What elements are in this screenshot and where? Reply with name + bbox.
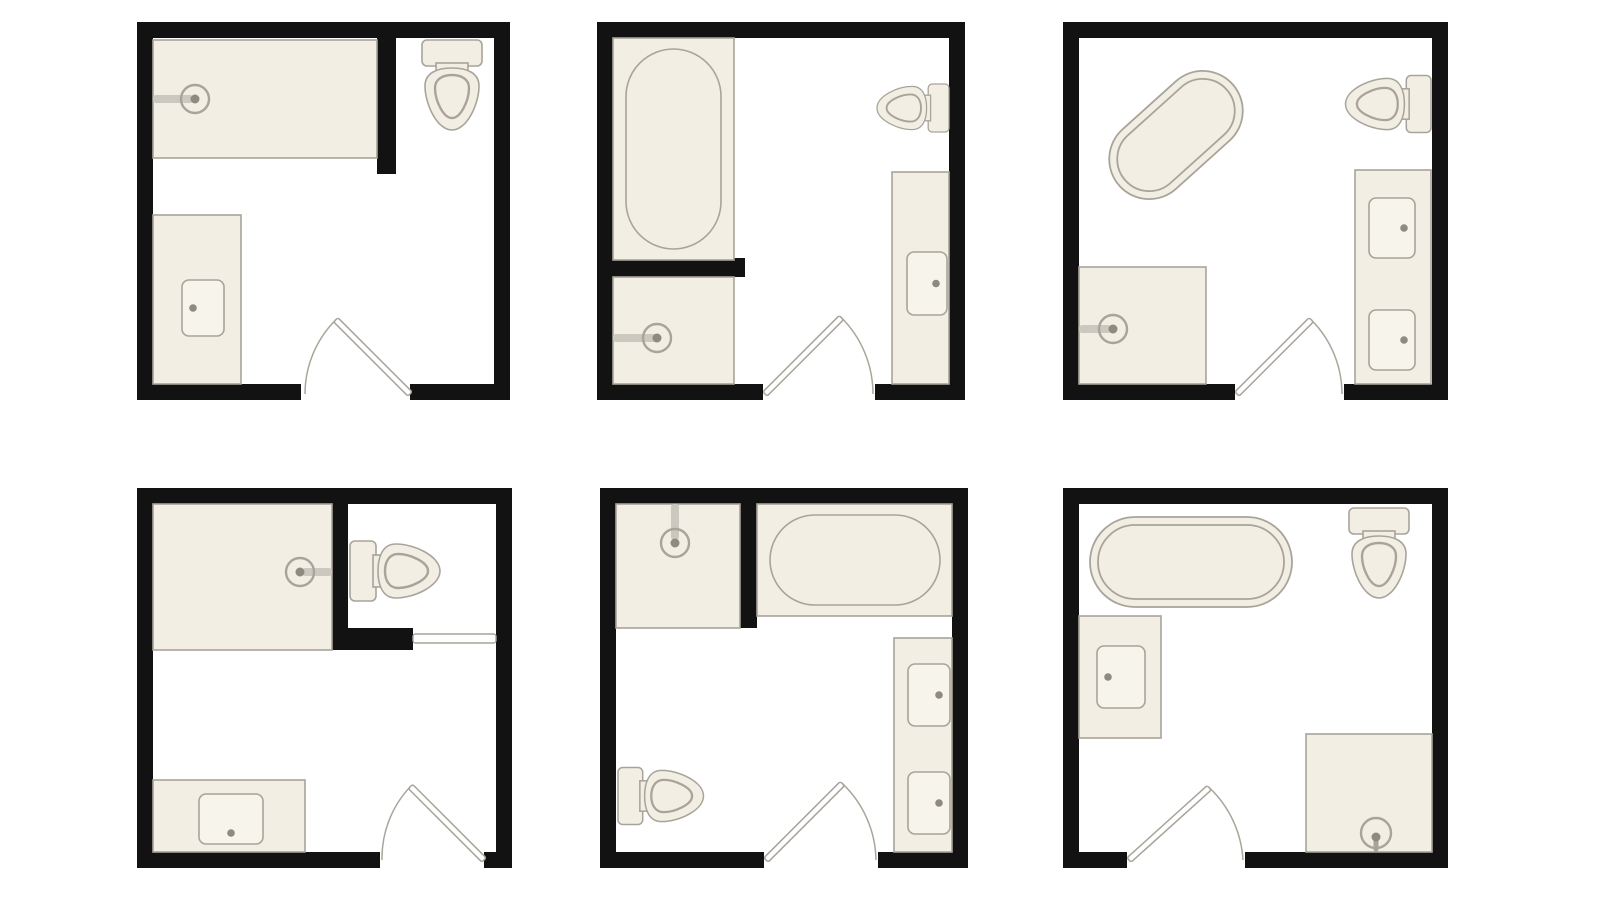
toilet-tank bbox=[928, 84, 949, 132]
floor-plans-canvas bbox=[0, 0, 1600, 900]
partition-wall bbox=[377, 22, 396, 174]
sink-drain bbox=[189, 304, 197, 312]
partition-wall bbox=[332, 488, 348, 650]
shower-arm bbox=[302, 568, 332, 576]
tub-outer bbox=[1090, 517, 1292, 607]
sink bbox=[907, 252, 947, 315]
bathtub-alcove bbox=[613, 38, 734, 260]
shower-head-nozzle bbox=[296, 568, 305, 577]
bathroom-plan-2 bbox=[597, 22, 965, 400]
sink bbox=[199, 794, 263, 844]
sink-basin bbox=[908, 664, 950, 726]
shower-head-nozzle bbox=[1109, 325, 1118, 334]
door-opening bbox=[380, 852, 484, 869]
partition-wall bbox=[740, 488, 757, 628]
sink-drain bbox=[1400, 224, 1408, 232]
sink bbox=[1369, 198, 1415, 258]
shower-arm bbox=[1079, 325, 1111, 333]
door-opening bbox=[764, 852, 878, 869]
sink bbox=[908, 664, 950, 726]
sliding-door bbox=[413, 634, 496, 643]
sink bbox=[908, 772, 950, 834]
shower-head-nozzle bbox=[653, 334, 662, 343]
sink-drain bbox=[227, 829, 235, 837]
tub-deck bbox=[613, 38, 734, 260]
tub-deck bbox=[757, 504, 952, 616]
door-opening bbox=[301, 384, 410, 401]
toilet-tank bbox=[1406, 76, 1431, 133]
toilet-tank bbox=[618, 768, 643, 825]
partition-wall bbox=[597, 258, 745, 277]
shower-head-nozzle bbox=[671, 539, 680, 548]
sink-basin bbox=[908, 772, 950, 834]
bathroom-plan-4 bbox=[137, 488, 512, 868]
toilet-tank bbox=[350, 541, 376, 601]
bathtub-freestanding bbox=[1090, 517, 1292, 607]
sink bbox=[1097, 646, 1145, 708]
sink-drain bbox=[1104, 673, 1112, 681]
bathroom-plan-3 bbox=[1063, 22, 1448, 400]
bathroom-plan-5 bbox=[600, 488, 968, 868]
sink bbox=[182, 280, 224, 336]
sink-basin bbox=[907, 252, 947, 315]
shower-head-nozzle bbox=[191, 95, 200, 104]
sink-basin bbox=[1369, 310, 1415, 370]
bathroom-plan-1 bbox=[137, 22, 510, 400]
shower-arm bbox=[613, 334, 657, 342]
door-opening bbox=[763, 384, 875, 401]
toilet-tank bbox=[1349, 508, 1409, 534]
sink-drain bbox=[935, 691, 943, 699]
shower-area bbox=[613, 277, 734, 384]
sink-drain bbox=[932, 280, 940, 288]
shower-head-nozzle bbox=[1372, 833, 1381, 842]
partition-wall bbox=[332, 628, 413, 650]
sink-basin bbox=[1097, 646, 1145, 708]
sink bbox=[1369, 310, 1415, 370]
toilet-tank bbox=[422, 40, 482, 66]
shower-area bbox=[153, 504, 332, 650]
shower-arm bbox=[671, 504, 679, 540]
shower-arm bbox=[153, 95, 193, 103]
sink-basin bbox=[182, 280, 224, 336]
bathtub-alcove bbox=[757, 504, 952, 616]
door-opening bbox=[1127, 852, 1245, 869]
door-opening bbox=[1235, 384, 1344, 401]
sink-drain bbox=[935, 799, 943, 807]
shower-area bbox=[1306, 734, 1432, 852]
sink-basin bbox=[1369, 198, 1415, 258]
bathroom-plan-6 bbox=[1063, 488, 1448, 868]
sink-drain bbox=[1400, 336, 1408, 344]
